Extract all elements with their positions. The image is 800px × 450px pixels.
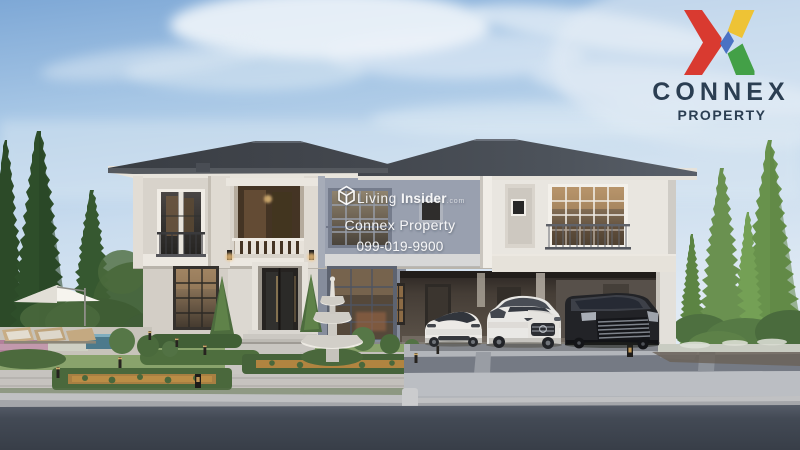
svg-text:099-019-9900: 099-019-9900 [356,239,443,254]
svg-text:CONNEX: CONNEX [652,78,790,106]
svg-text:Connex Property: Connex Property [344,217,455,233]
svg-text:PROPERTY: PROPERTY [677,107,766,123]
